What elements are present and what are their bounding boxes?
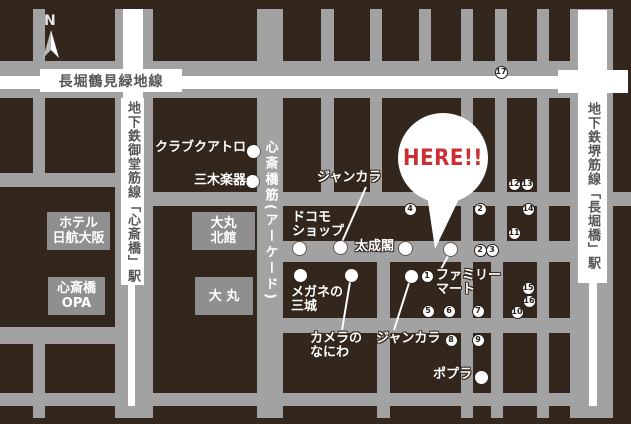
map-marker-12-12: 12	[508, 178, 521, 191]
jankara-south-label: ジャンカラ	[376, 332, 440, 346]
miki-gakki-dot	[246, 175, 259, 188]
taiseikaku-dot	[399, 242, 412, 255]
street-v6	[461, 9, 473, 418]
here-balloon: HERE!!	[398, 113, 488, 203]
map-marker-15-15: 15	[522, 282, 535, 295]
street-h3	[283, 241, 570, 262]
daimaru-north-building: 大丸北館	[192, 212, 255, 250]
map-marker-3-3: 3	[486, 244, 499, 257]
map-marker-2-2: 2	[474, 244, 487, 257]
map-marker-1-0: 1	[421, 270, 434, 283]
map-marker-17-17: 17	[495, 66, 508, 79]
street-v3x-top	[321, 9, 334, 61]
map-marker-13-13: 13	[521, 178, 534, 191]
map-marker-9-9: 9	[472, 334, 485, 347]
map-marker-4-4: 4	[404, 203, 417, 216]
megane-no-sanjo-label: メガネの 三城	[291, 286, 343, 314]
street-v8	[537, 9, 549, 418]
camera-no-naniwa-label: カメラの なにわ	[310, 332, 362, 360]
poplar-dot	[475, 371, 488, 384]
street-v5-top	[419, 9, 431, 61]
club-quattro-dot	[247, 145, 260, 158]
map-marker-2-1: 2	[474, 203, 487, 216]
map-marker-8-8: 8	[445, 334, 458, 347]
family-mart-label: ファミリー マート	[436, 269, 501, 297]
club-quattro-label: クラブクアトロ	[155, 141, 246, 155]
map-marker-16-16: 16	[523, 295, 536, 308]
taiseikaku-label: 太成閣	[355, 240, 394, 254]
docomo-shop-dot	[293, 242, 306, 255]
jankara-north-dot	[334, 241, 347, 254]
compass-north-label: N	[44, 13, 56, 29]
poplar-label: ポプラ	[433, 368, 472, 382]
here-label: HERE!!	[403, 146, 483, 171]
arcade-label: 心斎橋筋(アーケード)	[257, 136, 283, 306]
nagahori-line-label: 長堀鶴見緑地線	[40, 69, 182, 92]
hotel-nikko-osaka-building: ホテル日航大阪	[47, 212, 110, 250]
map-marker-5-5: 5	[422, 305, 435, 318]
street-v7-top	[495, 9, 507, 262]
street-h2	[153, 192, 631, 206]
map-marker-7-7: 7	[472, 305, 485, 318]
access-map: 長堀鶴見緑地線 地下鉄御堂筋線「心斎橋」駅 地下鉄堺筋線「長堀橋」駅 心斎橋筋(…	[0, 0, 631, 424]
map-marker-10-10: 10	[511, 306, 524, 319]
camera-no-naniwa-dot	[345, 269, 358, 282]
megane-no-sanjo-dot	[294, 269, 307, 282]
map-marker-11-11: 11	[508, 227, 521, 240]
map-marker-14-14: 14	[522, 203, 535, 216]
midosuji-line-thin	[128, 285, 135, 406]
street-h2-left	[0, 173, 115, 187]
sakaisuji-line-thin	[589, 283, 597, 406]
family-mart-dot	[444, 243, 457, 256]
map-marker-6-6: 6	[443, 305, 456, 318]
miki-gakki-label: 三木楽器	[194, 174, 246, 188]
shinsaibashi-opa-building: 心斎橋OPA	[48, 277, 105, 315]
sakaisuji-station-label: 地下鉄堺筋線「長堀橋」駅	[578, 100, 607, 272]
street-h4-left	[0, 327, 115, 344]
daimaru-building: 大 丸	[195, 277, 253, 315]
jankara-north-label: ジャンカラ	[317, 171, 381, 185]
docomo-shop-label: ドコモ ショップ	[292, 211, 344, 239]
jankara-south-dot	[405, 270, 418, 283]
street-v1-bottom	[33, 327, 45, 418]
street-v1-top	[33, 9, 45, 187]
street-v4-bottom	[377, 241, 390, 418]
midosuji-station-label: 地下鉄御堂筋線「心斎橋」駅	[121, 98, 144, 285]
